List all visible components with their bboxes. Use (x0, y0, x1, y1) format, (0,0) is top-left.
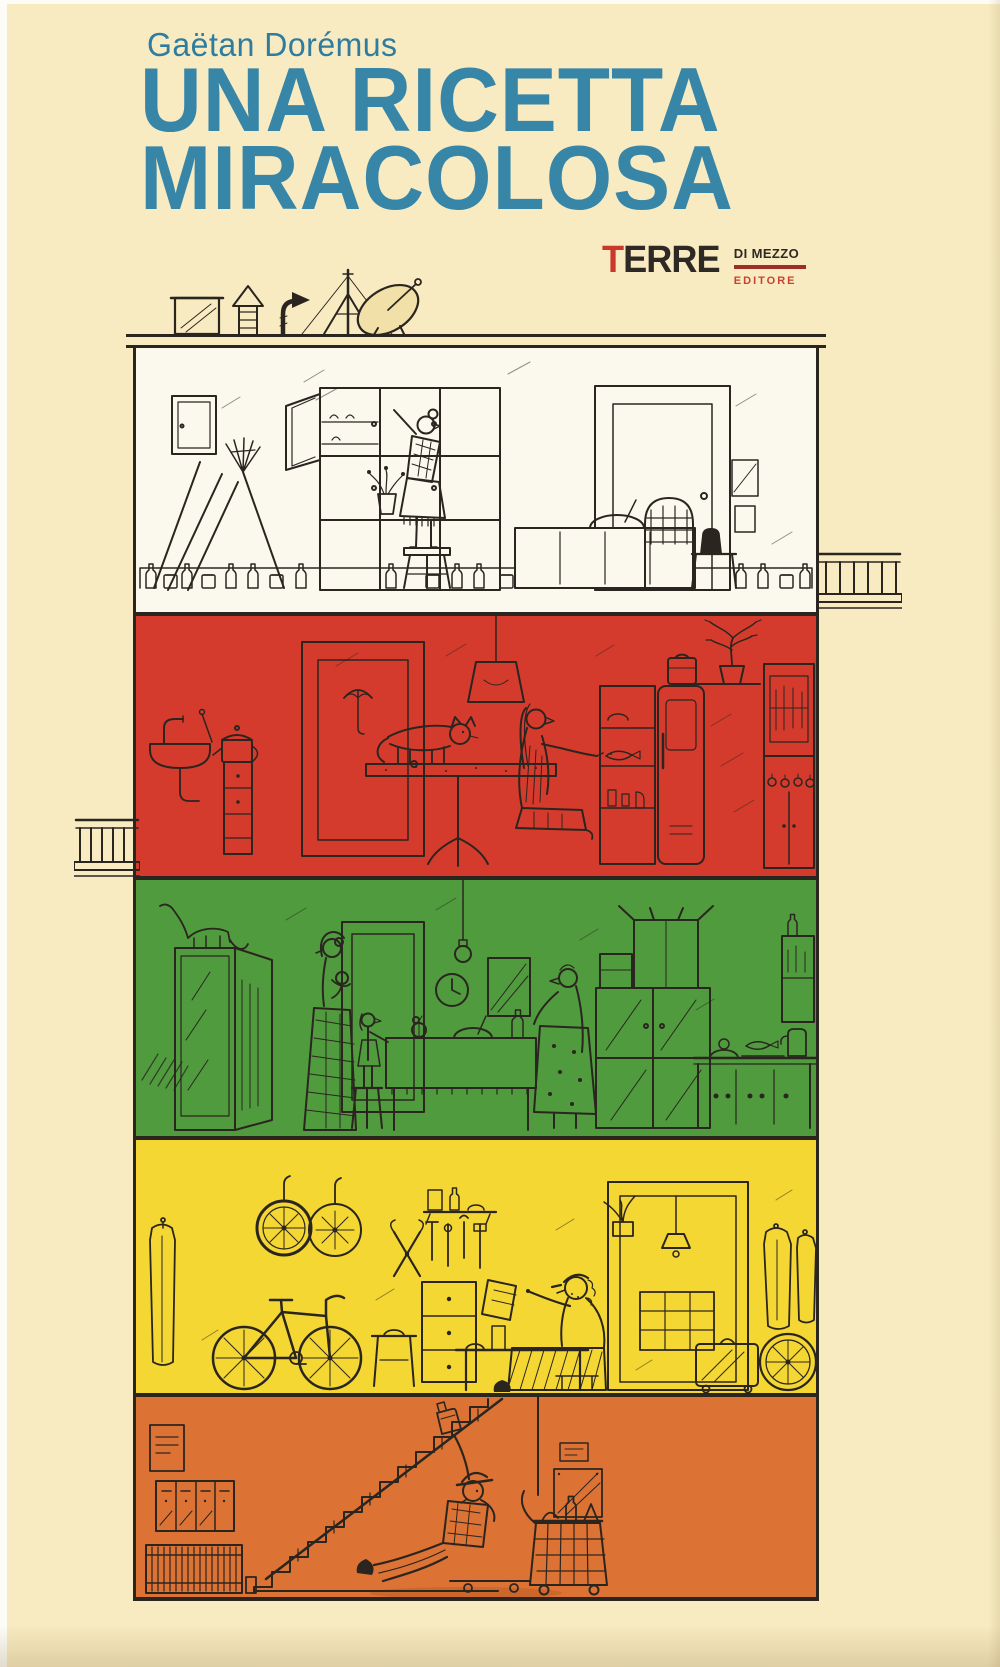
wall-cabinet-right (782, 915, 814, 1023)
open-fridge-interior (600, 686, 655, 864)
ladder-arrow-icon (233, 286, 263, 334)
red-floor-scene (136, 616, 816, 876)
grandmother-figure (394, 410, 445, 548)
kneeling-woman-figure (516, 704, 603, 839)
right-cupboard-cups (764, 664, 814, 868)
fallen-shopper-figure (357, 1402, 530, 1592)
hanging-coat-left (150, 1218, 175, 1365)
floor-red (136, 616, 816, 876)
wall-hatching (222, 362, 792, 544)
workshop-shelf-tools (422, 1188, 496, 1382)
balcony-left (74, 816, 140, 882)
parent-with-child (304, 932, 356, 1130)
wall-hatching (336, 644, 754, 812)
floor-ground-orange (136, 1397, 816, 1597)
small-pictures (732, 460, 758, 532)
leaning-wheel (760, 1334, 816, 1390)
publisher-imprint: DI MEZZO (734, 246, 799, 261)
hanging-bulb (455, 880, 471, 962)
building-floors (133, 348, 819, 1601)
radiator (146, 1545, 242, 1593)
preserve-shelf (140, 564, 812, 588)
yellow-floor-scene (136, 1140, 816, 1393)
bottom-shadow (0, 1625, 1000, 1667)
mailboxes (156, 1481, 234, 1531)
wall-clock (436, 974, 468, 1006)
notice-poster-right (560, 1443, 588, 1461)
brooms (154, 438, 284, 590)
scan-edge-top (0, 0, 1000, 4)
creature-on-armoire (160, 904, 248, 949)
armoire-open (175, 948, 272, 1130)
floor-green (136, 880, 816, 1136)
side-table (372, 1330, 416, 1386)
wall-hatching (286, 898, 714, 1010)
cupboard-with-boxes (596, 906, 713, 1128)
wash-basin (150, 710, 212, 802)
window-frame (604, 1182, 748, 1390)
hanging-bicycle-wheels (257, 1176, 361, 1256)
notice-board-right (554, 1469, 602, 1517)
chimney-icon (171, 298, 223, 334)
ground-floor-scene (136, 1397, 816, 1597)
potted-tree (680, 620, 761, 684)
notice-poster-left (150, 1425, 184, 1471)
green-floor-scene (136, 880, 816, 1136)
kitchen-counter (694, 1029, 816, 1128)
kitchen-table (515, 500, 695, 588)
coffee-pot-stand (213, 726, 258, 854)
pantry-cupboard (286, 388, 500, 590)
attic-scene (136, 348, 816, 612)
title-line-2: MIRACOLOSA (140, 140, 734, 218)
reading-man-figure (482, 1275, 606, 1392)
picture-frame (488, 958, 530, 1016)
cat-figure (378, 717, 478, 764)
right-shadow (988, 0, 1000, 1667)
leaning-woman-figure (534, 965, 596, 1128)
balcony-right (816, 550, 902, 614)
wall-shears (391, 1220, 424, 1276)
building-base-line (136, 1597, 816, 1601)
roof-slab (126, 334, 826, 348)
bent-arrow-icon (280, 292, 310, 334)
pendant-lamp (468, 616, 524, 702)
fridge-door (658, 686, 704, 864)
floor-yellow (136, 1140, 816, 1393)
canister-on-fridge (668, 655, 696, 684)
bicycle (213, 1296, 361, 1389)
hanging-coats-right (764, 1224, 816, 1329)
girl-on-stool (352, 1014, 388, 1129)
book-cover: Gaëtan Dorémus UNA RICETTA MIRACOLOSA TE… (0, 0, 1000, 1667)
book-title: UNA RICETTA MIRACOLOSA (140, 62, 734, 218)
floor-attic-white (136, 348, 816, 612)
wall-cabinet (172, 396, 216, 454)
scan-edge-left (0, 0, 7, 1667)
